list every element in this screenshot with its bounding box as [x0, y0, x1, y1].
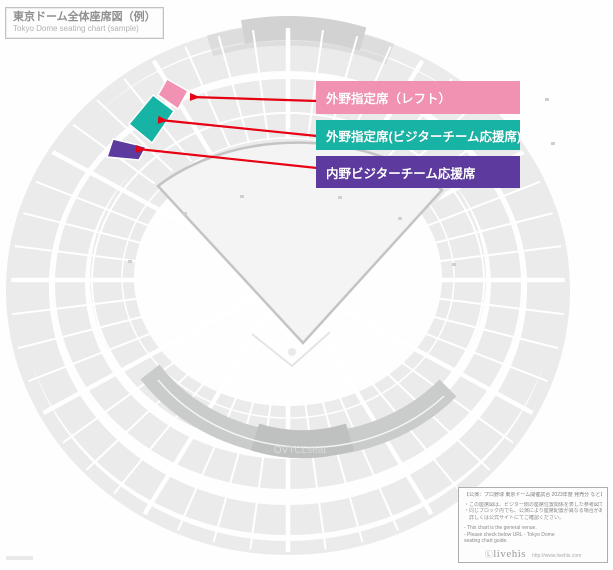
- info-note-en-3: seating chart guide.: [464, 538, 602, 545]
- legend-infield-visitor: 内野ビジターチーム応援席: [316, 156, 520, 188]
- legend-label-infield-visitor: 内野ビジターチーム応援席: [326, 163, 475, 182]
- watermark-text: OVTCLseat: [274, 445, 326, 456]
- info-box: 【公演：プロ野球 東京ドーム開催試合 2023年度 発売分 など】 ・この座席図…: [458, 487, 608, 563]
- roof-rim-dark-arc: [243, 28, 363, 39]
- legend-outfield-left: 外野指定席（レフト）: [316, 81, 520, 114]
- info-note-ja-2: ・同じブロック内でも、公演により座席配置が異なる場合があります。: [464, 508, 602, 515]
- legend-label-outfield-left: 外野指定席（レフト）: [326, 88, 451, 107]
- corner-mark: [6, 556, 33, 560]
- home-plate-circle: [288, 348, 296, 356]
- stadium-map: OVTCLseat: [0, 0, 613, 570]
- page-subtitle: Tokyo Dome seating chart (sample): [13, 24, 156, 34]
- legend-label-outfield-visitor: 外野指定席(ビジターチーム応援席): [326, 126, 521, 145]
- livehis-logo-text: livehis: [493, 548, 526, 560]
- title-box: 東京ドーム全体座席図（例） Tokyo Dome seating chart (…: [5, 7, 164, 39]
- seating-chart-page: OVTCLseat 東京ドーム全体座席図（例） Tokyo Dome seati…: [0, 0, 613, 570]
- livehis-logo-icon: Ⓛ: [485, 550, 494, 559]
- livehis-logo: Ⓛlivehis: [485, 548, 526, 560]
- site-url: http://www.livehis.com: [532, 553, 581, 559]
- info-header: 【公演：プロ野球 東京ドーム開催試合 2023年度 発売分 など】: [464, 492, 602, 499]
- legend-outfield-visitor: 外野指定席(ビジターチーム応援席): [316, 120, 520, 150]
- page-title: 東京ドーム全体座席図（例）: [13, 11, 156, 24]
